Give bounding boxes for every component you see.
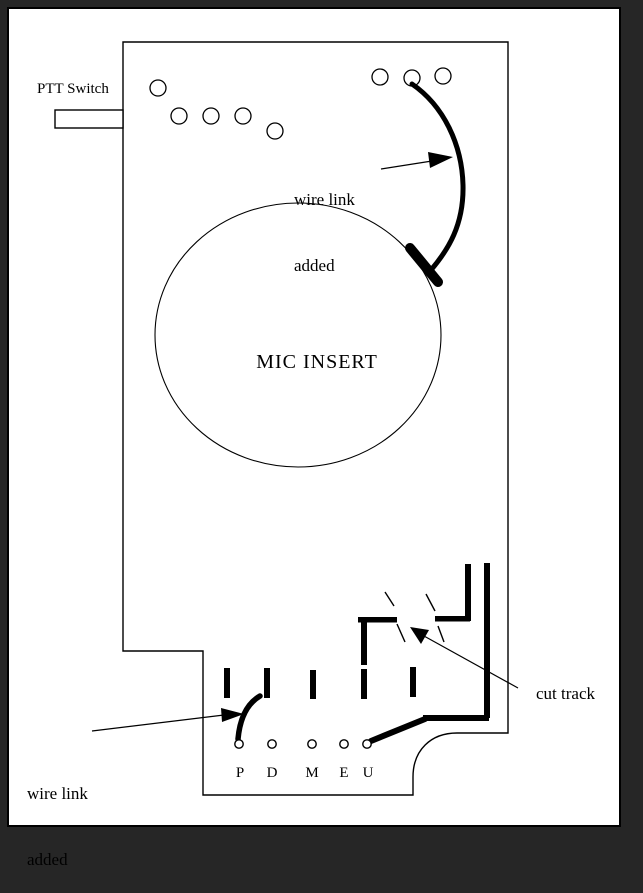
cut-track-arrow [410,627,518,688]
solder-holes-left-group [150,80,283,139]
bottom-wire-link-label-line2: added [27,849,88,871]
solder-hole [171,108,187,124]
pad-letter-e: E [339,765,348,782]
mic-insert-label: MIC INSERT [256,352,378,372]
trace-left-of-cut [358,617,397,665]
pcb-modification-diagram [0,0,643,851]
track-stub [410,667,416,697]
trace-right-of-cut [435,564,471,622]
solder-hole [235,108,251,124]
pad-d [268,740,276,748]
pad-e [340,740,348,748]
scanned-diagram-page: { "frame": { "background_color": "#26262… [0,0,643,851]
pad-letter-u: U [363,765,374,782]
pad-letter-d: D [267,765,278,782]
top-wire-link-label: wire link added [294,145,355,299]
bottom-wire-link-label: wire link added [27,739,88,893]
connector-pads [235,740,371,748]
solder-hole [372,69,388,85]
track-stub [361,669,367,699]
track-stub [310,670,316,699]
pad-letter-p: P [236,765,244,782]
solder-hole [435,68,451,84]
trace-to-pad-u [371,563,490,741]
bottom-wire-link [238,696,260,739]
ptt-switch-tab [55,110,123,128]
cut-track-label: cut track [536,685,595,702]
track-stub [224,668,230,698]
pad-letter-m: M [305,765,318,782]
bottom-wire-link-arrow [92,708,244,731]
track-stubs [224,667,416,699]
top-wire-link-label-line1: wire link [294,189,355,211]
track-stub [264,668,270,698]
pad-u [363,740,371,748]
top-wire-link-label-line2: added [294,255,355,277]
bottom-wire-link-label-line1: wire link [27,783,88,805]
ptt-switch-label: PTT Switch [37,82,109,97]
pad-p [235,740,243,748]
solder-hole [203,108,219,124]
solder-hole [267,123,283,139]
top-wire-link [412,84,463,270]
solder-hole [150,80,166,96]
top-wire-link-arrow [381,152,453,169]
pad-m [308,740,316,748]
